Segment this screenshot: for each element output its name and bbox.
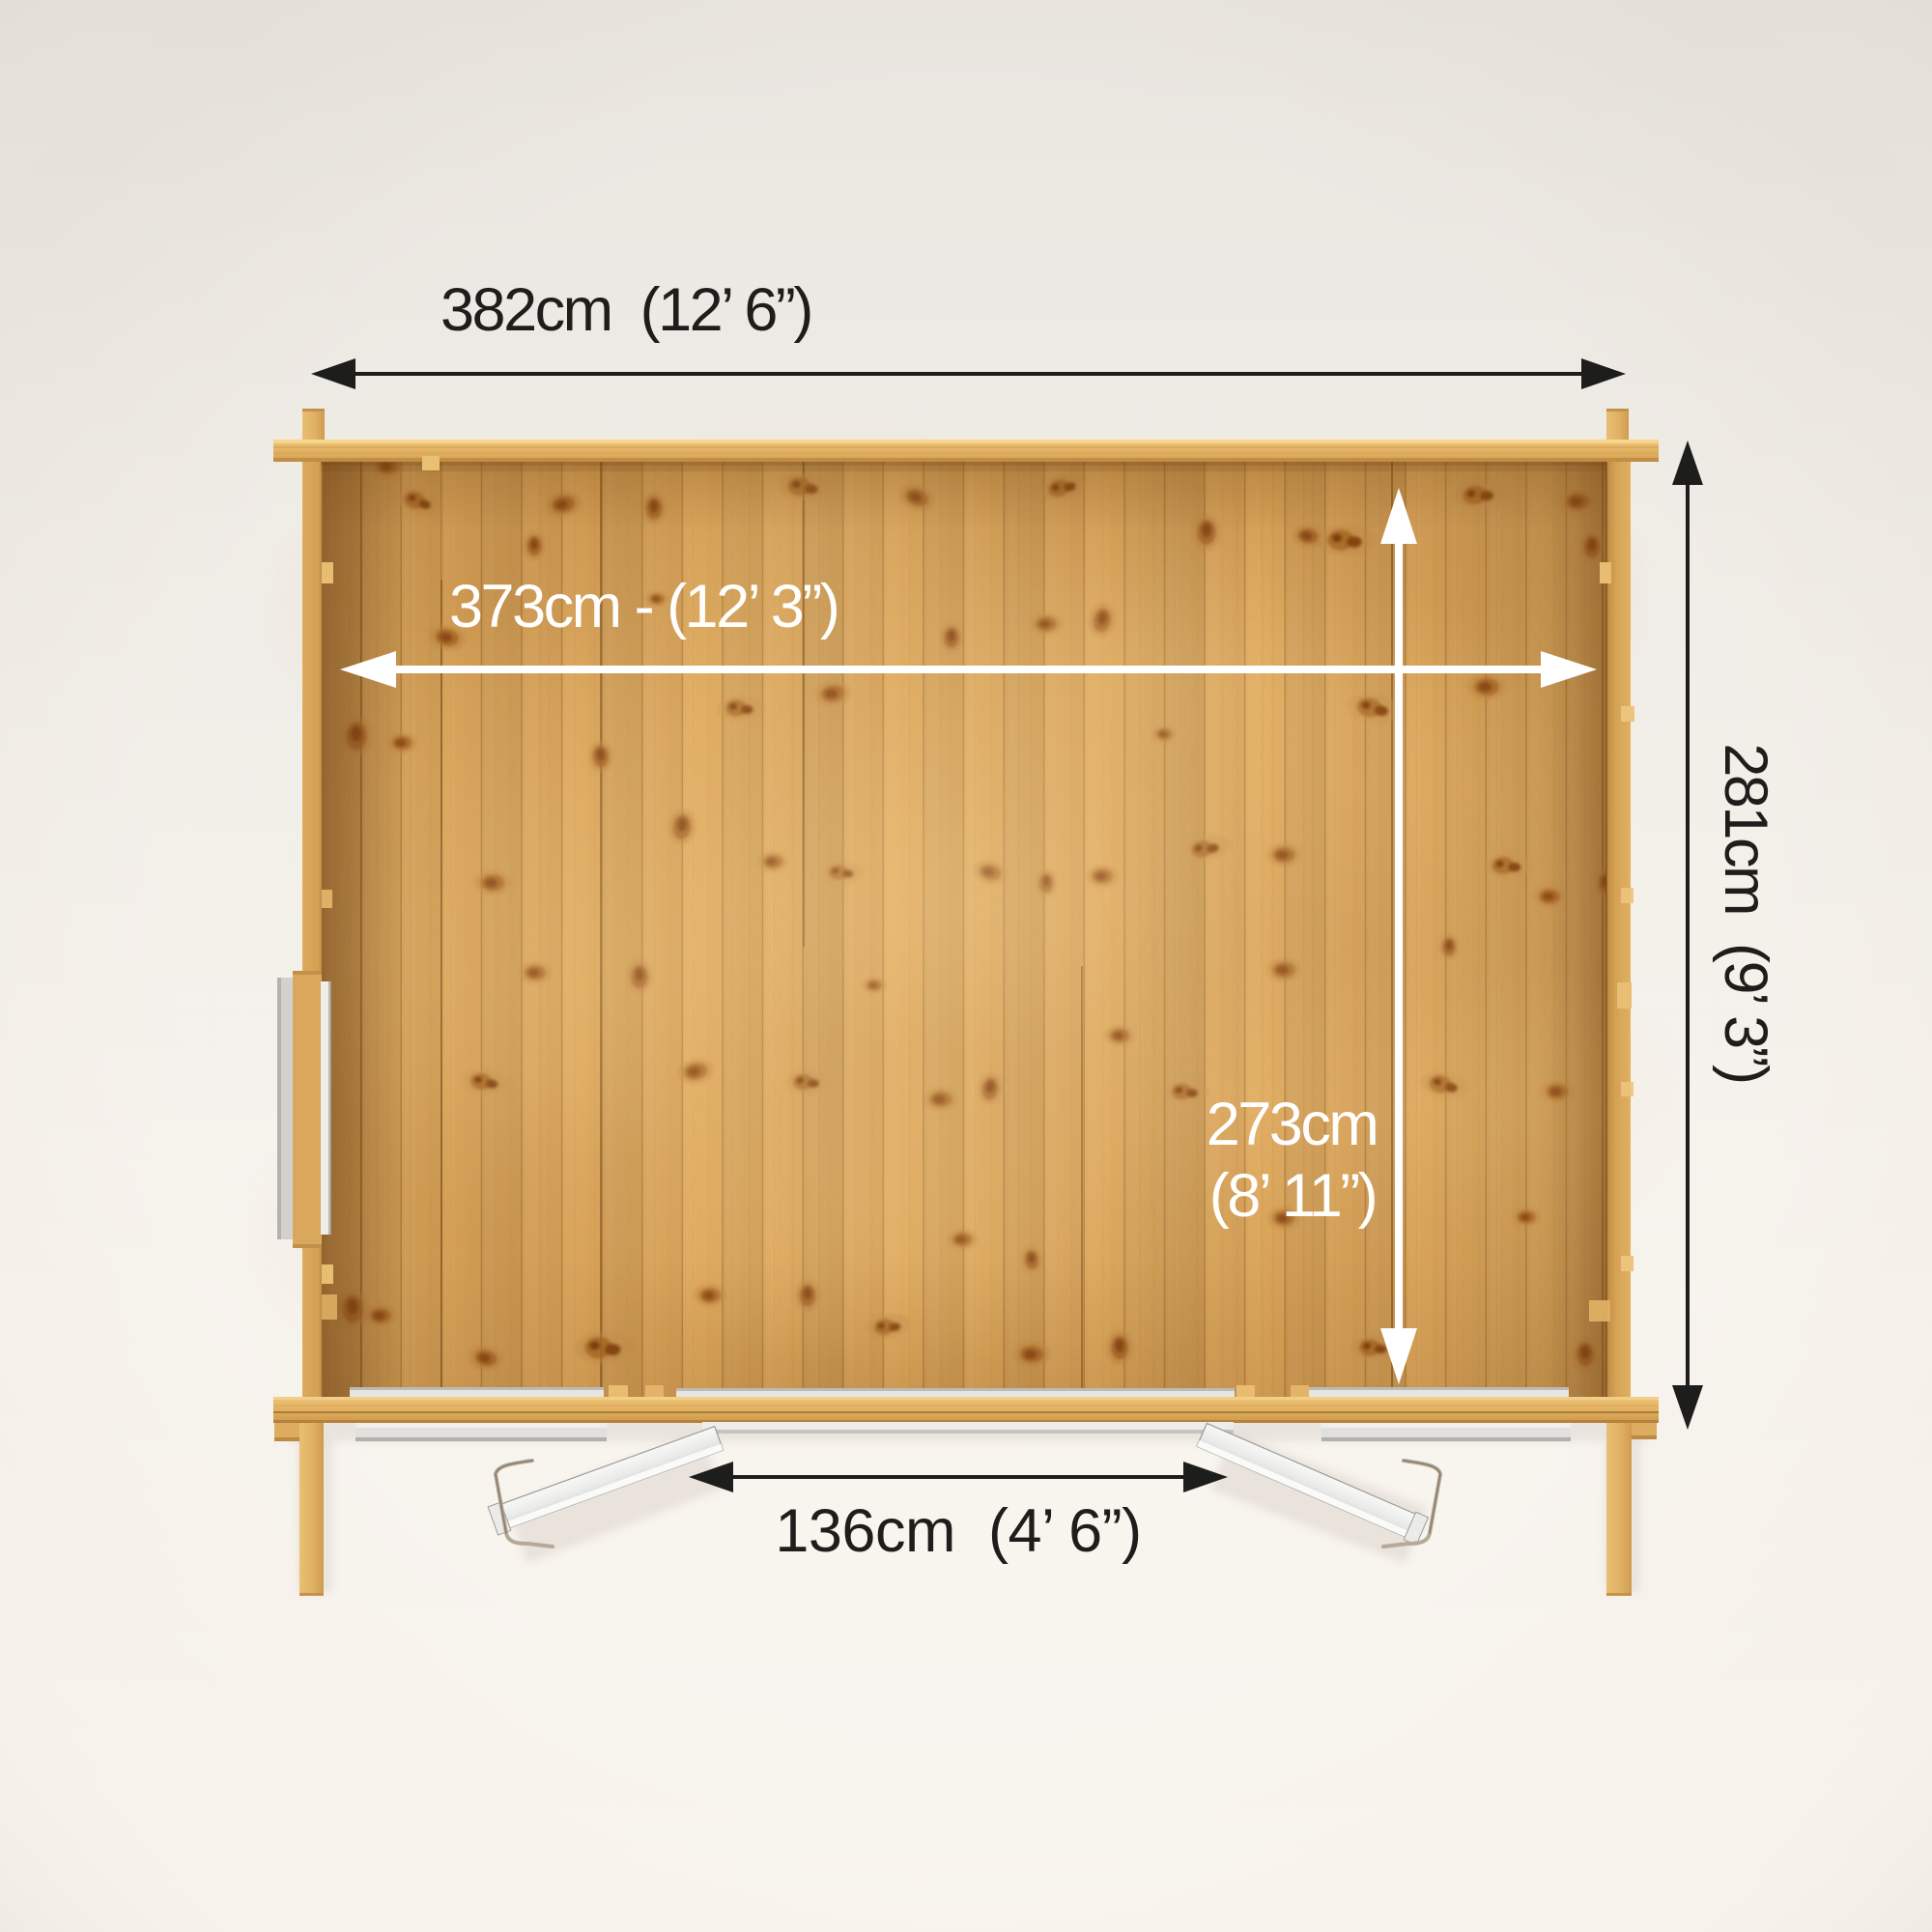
svg-text:382cm (12’ 6”): 382cm (12’ 6”) xyxy=(440,276,811,344)
svg-text:281cm (9’ 3”): 281cm (9’ 3”) xyxy=(1712,743,1779,1082)
svg-text:273cm: 273cm xyxy=(1207,1091,1378,1158)
svg-text:136cm (4’ 6”): 136cm (4’ 6”) xyxy=(775,1497,1141,1565)
svg-text:373cm - (12’ 3”): 373cm - (12’ 3”) xyxy=(449,573,838,640)
svg-text:(8’ 11”): (8’ 11”) xyxy=(1209,1162,1377,1230)
